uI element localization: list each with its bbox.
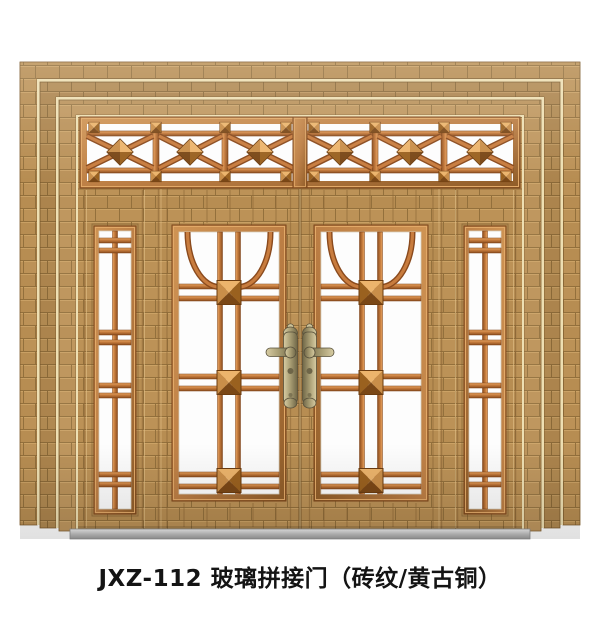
door-product-image — [0, 0, 600, 628]
product-photo-page: JXZ-112 玻璃拼接门（砖纹/黄古铜） — [0, 0, 600, 628]
product-caption: JXZ-112 玻璃拼接门（砖纹/黄古铜） — [0, 559, 600, 593]
